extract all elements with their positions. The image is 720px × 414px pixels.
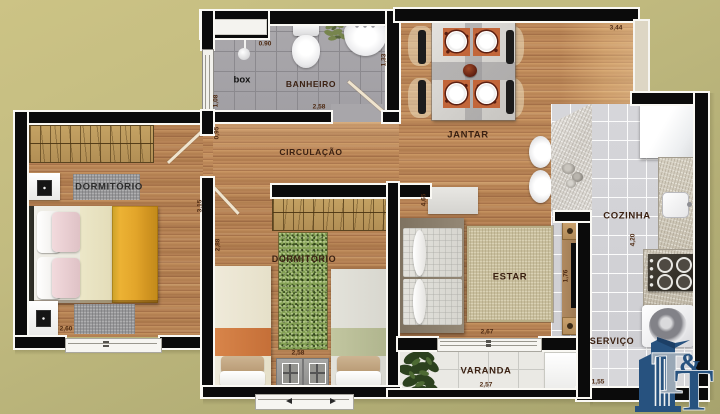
svg-text:T: T xyxy=(674,357,714,414)
